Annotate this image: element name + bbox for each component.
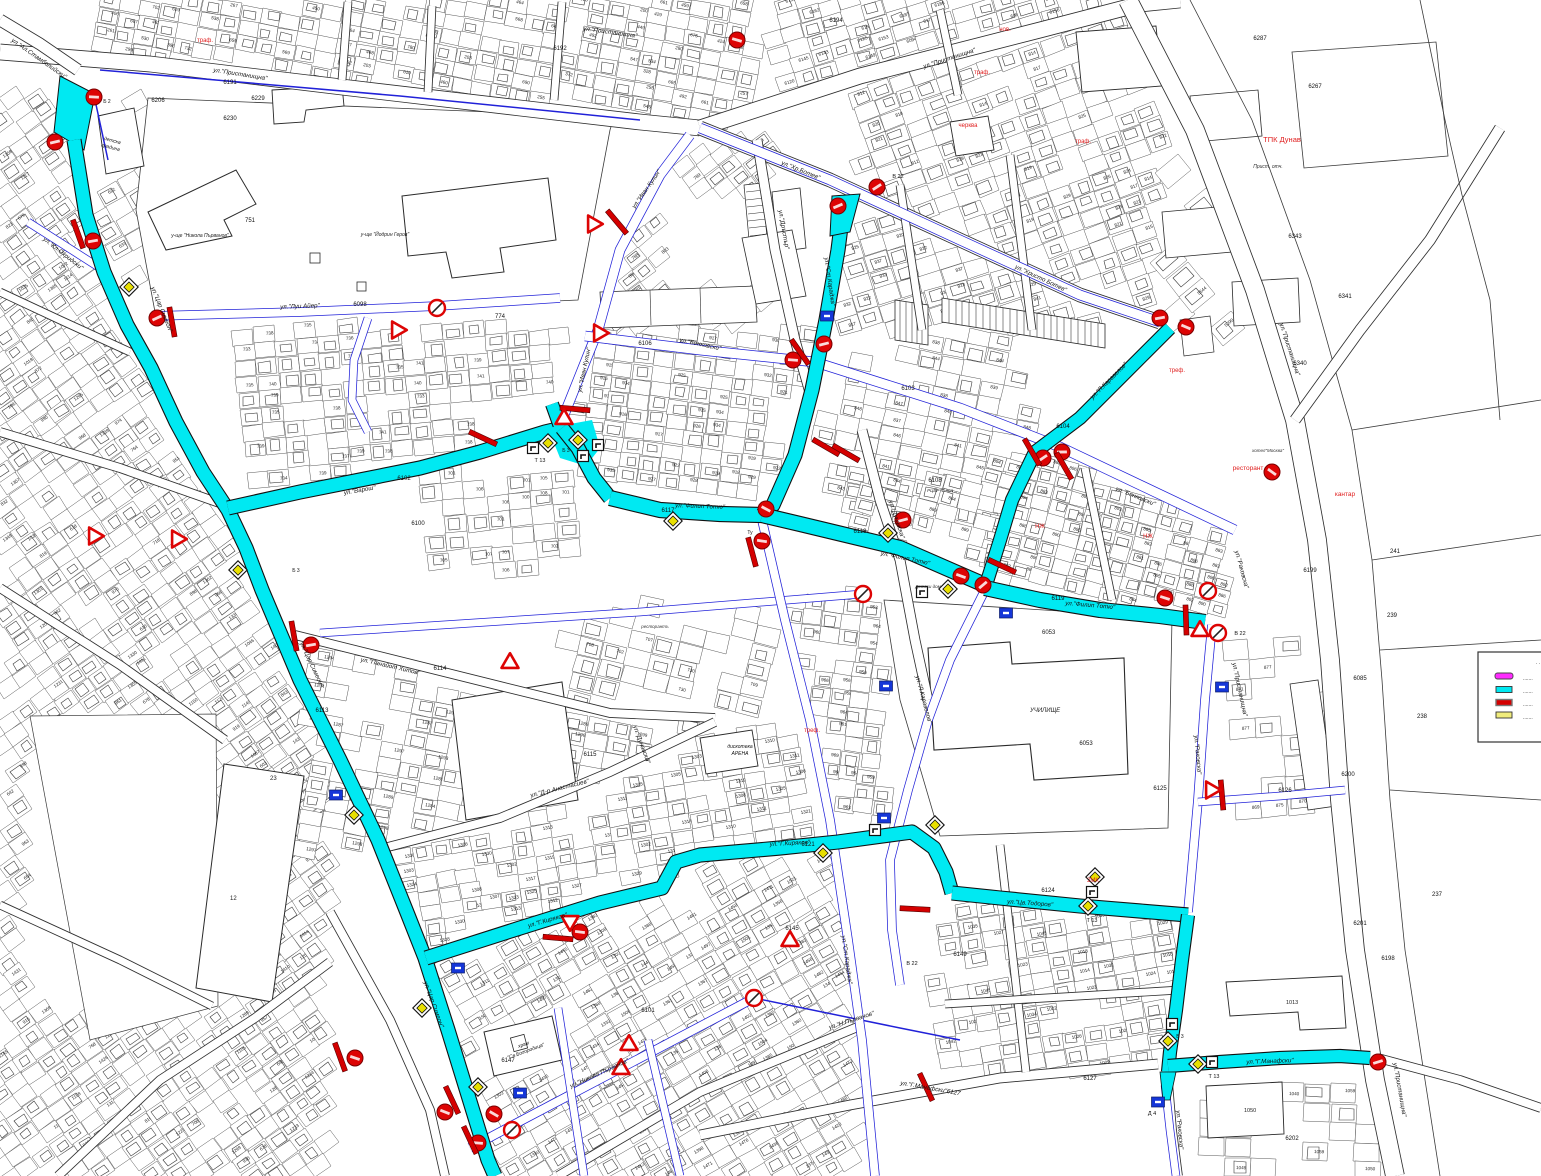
svg-text:6145: 6145	[785, 926, 799, 932]
svg-text:хотел"Москва": хотел"Москва"	[1251, 448, 1284, 453]
svg-text:739: 739	[474, 357, 483, 363]
svg-text:733: 733	[417, 393, 426, 399]
svg-text:УЧИЛИЩЕ: УЧИЛИЩЕ	[1029, 708, 1061, 714]
svg-text:6267: 6267	[1308, 84, 1322, 90]
svg-text:701: 701	[497, 516, 506, 522]
svg-text:6117: 6117	[662, 508, 676, 514]
svg-text:6113: 6113	[316, 708, 330, 714]
svg-text:6149: 6149	[953, 952, 967, 958]
svg-text:1050: 1050	[1244, 1108, 1256, 1114]
svg-text:кантар: кантар	[1335, 491, 1356, 498]
svg-text:733: 733	[243, 346, 252, 352]
svg-text:2МК: 2МК	[1087, 878, 1099, 884]
svg-text:6343: 6343	[1288, 234, 1302, 240]
svg-text:Прист. отч.: Прист. отч.	[1253, 164, 1283, 170]
svg-text:739: 739	[271, 392, 280, 398]
svg-text:736: 736	[346, 335, 355, 341]
svg-text:870: 870	[1299, 798, 1308, 804]
svg-text:735: 735	[272, 409, 281, 415]
svg-text:6191: 6191	[223, 80, 237, 86]
svg-text:741: 741	[477, 373, 486, 379]
svg-text:1040: 1040	[1289, 1091, 1300, 1096]
svg-text:23: 23	[270, 776, 277, 782]
svg-text:Б 3: Б 3	[1176, 1034, 1184, 1040]
svg-text:у-ще "Йодрин Геров": у-ще "Йодрин Геров"	[360, 230, 410, 238]
svg-text:739: 739	[357, 448, 366, 454]
svg-text:Д 4: Д 4	[1148, 1111, 1156, 1117]
svg-text:у-ще "Никола Първанов": у-ще "Никола Първанов"	[170, 233, 229, 239]
svg-text:238: 238	[1417, 714, 1428, 720]
svg-text:701: 701	[448, 470, 457, 476]
svg-text:Б 2: Б 2	[103, 99, 111, 105]
svg-text:6100: 6100	[411, 521, 425, 527]
svg-text:6108: 6108	[928, 478, 942, 484]
svg-text:траф.: траф.	[197, 38, 213, 44]
svg-text:6053: 6053	[1079, 741, 1093, 747]
svg-text:751: 751	[245, 218, 256, 224]
svg-text:735: 735	[304, 322, 313, 328]
svg-text:877: 877	[1242, 725, 1251, 731]
svg-text:6104: 6104	[1056, 424, 1070, 430]
svg-text:6199: 6199	[1303, 568, 1317, 574]
svg-text:706: 706	[502, 567, 511, 573]
svg-text:6341: 6341	[1338, 294, 1352, 300]
svg-text:1050: 1050	[1365, 1166, 1376, 1171]
svg-text:6194: 6194	[829, 18, 843, 24]
svg-text:6200: 6200	[1341, 772, 1355, 778]
svg-text:6124: 6124	[1041, 888, 1055, 894]
svg-text:708: 708	[540, 490, 549, 496]
svg-text:239: 239	[1387, 613, 1398, 619]
svg-text:738: 738	[465, 439, 474, 445]
svg-text:6101: 6101	[641, 1008, 655, 1014]
svg-text:Ту: Ту	[747, 530, 753, 536]
svg-text:6230: 6230	[223, 116, 237, 122]
svg-text:6340: 6340	[1293, 361, 1307, 367]
svg-text:701: 701	[562, 489, 571, 495]
svg-text:739: 739	[257, 443, 266, 449]
svg-text:877: 877	[1264, 664, 1273, 670]
svg-text:740: 740	[414, 380, 423, 386]
svg-text:6202: 6202	[1285, 1136, 1299, 1142]
svg-text:черква: черква	[959, 123, 979, 129]
svg-text:траф.: траф.	[1075, 139, 1091, 145]
svg-text:НЖ: НЖ	[1143, 534, 1153, 540]
svg-text:Б 3: Б 3	[292, 568, 300, 574]
svg-text:6085: 6085	[1353, 676, 1367, 682]
svg-text:738: 738	[266, 330, 275, 336]
svg-text:.......: .......	[1523, 702, 1533, 708]
svg-text:ресторантъ: ресторантъ	[640, 624, 669, 629]
svg-text:6115: 6115	[584, 752, 598, 758]
svg-text:Т 13: Т 13	[1208, 1074, 1219, 1080]
svg-text:Т 13: Т 13	[534, 458, 545, 464]
svg-text:Б 3: Б 3	[562, 448, 570, 454]
svg-text:траф.: траф.	[974, 70, 990, 76]
svg-text:6192: 6192	[553, 46, 567, 52]
svg-text:В 22: В 22	[1234, 631, 1245, 637]
svg-text:705: 705	[540, 475, 549, 481]
svg-text:6127: 6127	[1083, 1076, 1097, 1082]
svg-text:Т 13: Т 13	[1086, 918, 1097, 924]
svg-text:ул."Луи Айер": ул."Луи Айер"	[279, 302, 321, 310]
svg-text:6121: 6121	[801, 842, 815, 848]
svg-text:6106: 6106	[638, 341, 652, 347]
svg-text:735: 735	[396, 364, 405, 370]
svg-text:701: 701	[523, 477, 532, 483]
svg-text:1013: 1013	[1286, 1000, 1298, 1006]
svg-text:.......: .......	[1523, 715, 1533, 721]
svg-text:6198: 6198	[1381, 956, 1395, 962]
svg-text:НЖ: НЖ	[1035, 524, 1045, 530]
svg-text:1059: 1059	[1345, 1088, 1356, 1093]
svg-text:6102: 6102	[397, 476, 411, 482]
svg-text:738: 738	[333, 405, 342, 411]
svg-text:741: 741	[379, 429, 388, 435]
svg-text:РЦВР-Ф.чел: РЦВР-Ф.чел	[927, 488, 953, 493]
svg-text:734: 734	[280, 475, 289, 481]
svg-text:740: 740	[546, 379, 555, 385]
svg-text:6229: 6229	[251, 96, 265, 102]
svg-text:ресторант: ресторант	[1233, 465, 1264, 472]
svg-text:6053: 6053	[1042, 630, 1056, 636]
svg-text:1049: 1049	[1236, 1165, 1247, 1170]
svg-text:6098: 6098	[353, 302, 367, 308]
svg-text:706: 706	[476, 486, 485, 492]
svg-text:ТПК Дунав: ТПК Дунав	[1263, 135, 1301, 144]
svg-text:740: 740	[269, 381, 278, 387]
svg-text:1059: 1059	[1314, 1149, 1325, 1154]
svg-text:737: 737	[342, 453, 351, 459]
svg-text:6103: 6103	[901, 386, 915, 392]
svg-text:705: 705	[440, 557, 449, 563]
svg-text:6201: 6201	[1353, 921, 1367, 927]
svg-text:В 22: В 22	[906, 961, 917, 967]
svg-text:241: 241	[1390, 549, 1401, 555]
svg-text:6118: 6118	[854, 529, 868, 535]
svg-text:6125: 6125	[1153, 786, 1167, 792]
svg-text:707: 707	[502, 549, 511, 555]
svg-text:735: 735	[246, 382, 255, 388]
svg-text:702: 702	[551, 543, 560, 549]
svg-text:700: 700	[522, 494, 531, 500]
svg-text:.......: .......	[1523, 689, 1533, 695]
svg-text:741: 741	[416, 360, 425, 366]
svg-text:6126: 6126	[1278, 788, 1292, 794]
svg-text:6206: 6206	[151, 98, 165, 104]
svg-text:.......: .......	[1523, 676, 1533, 682]
svg-text:. .: . .	[1536, 660, 1540, 666]
svg-text:Детски дом: Детски дом	[914, 584, 941, 589]
svg-text:В 22: В 22	[892, 174, 903, 180]
svg-text:треф.: треф.	[804, 728, 820, 734]
svg-text:12: 12	[230, 896, 237, 902]
svg-text:6287: 6287	[1253, 36, 1267, 42]
svg-text:треф.: треф.	[1169, 368, 1185, 374]
svg-text:738: 738	[467, 421, 476, 427]
svg-text:нов.: нов.	[999, 27, 1011, 33]
svg-text:739: 739	[319, 470, 328, 476]
svg-text:6119: 6119	[1052, 596, 1066, 602]
svg-text:869: 869	[1252, 804, 1261, 810]
svg-text:6114: 6114	[434, 666, 448, 672]
svg-text:237: 237	[1432, 892, 1443, 898]
svg-text:774: 774	[495, 314, 506, 320]
svg-text:875: 875	[1276, 802, 1285, 808]
